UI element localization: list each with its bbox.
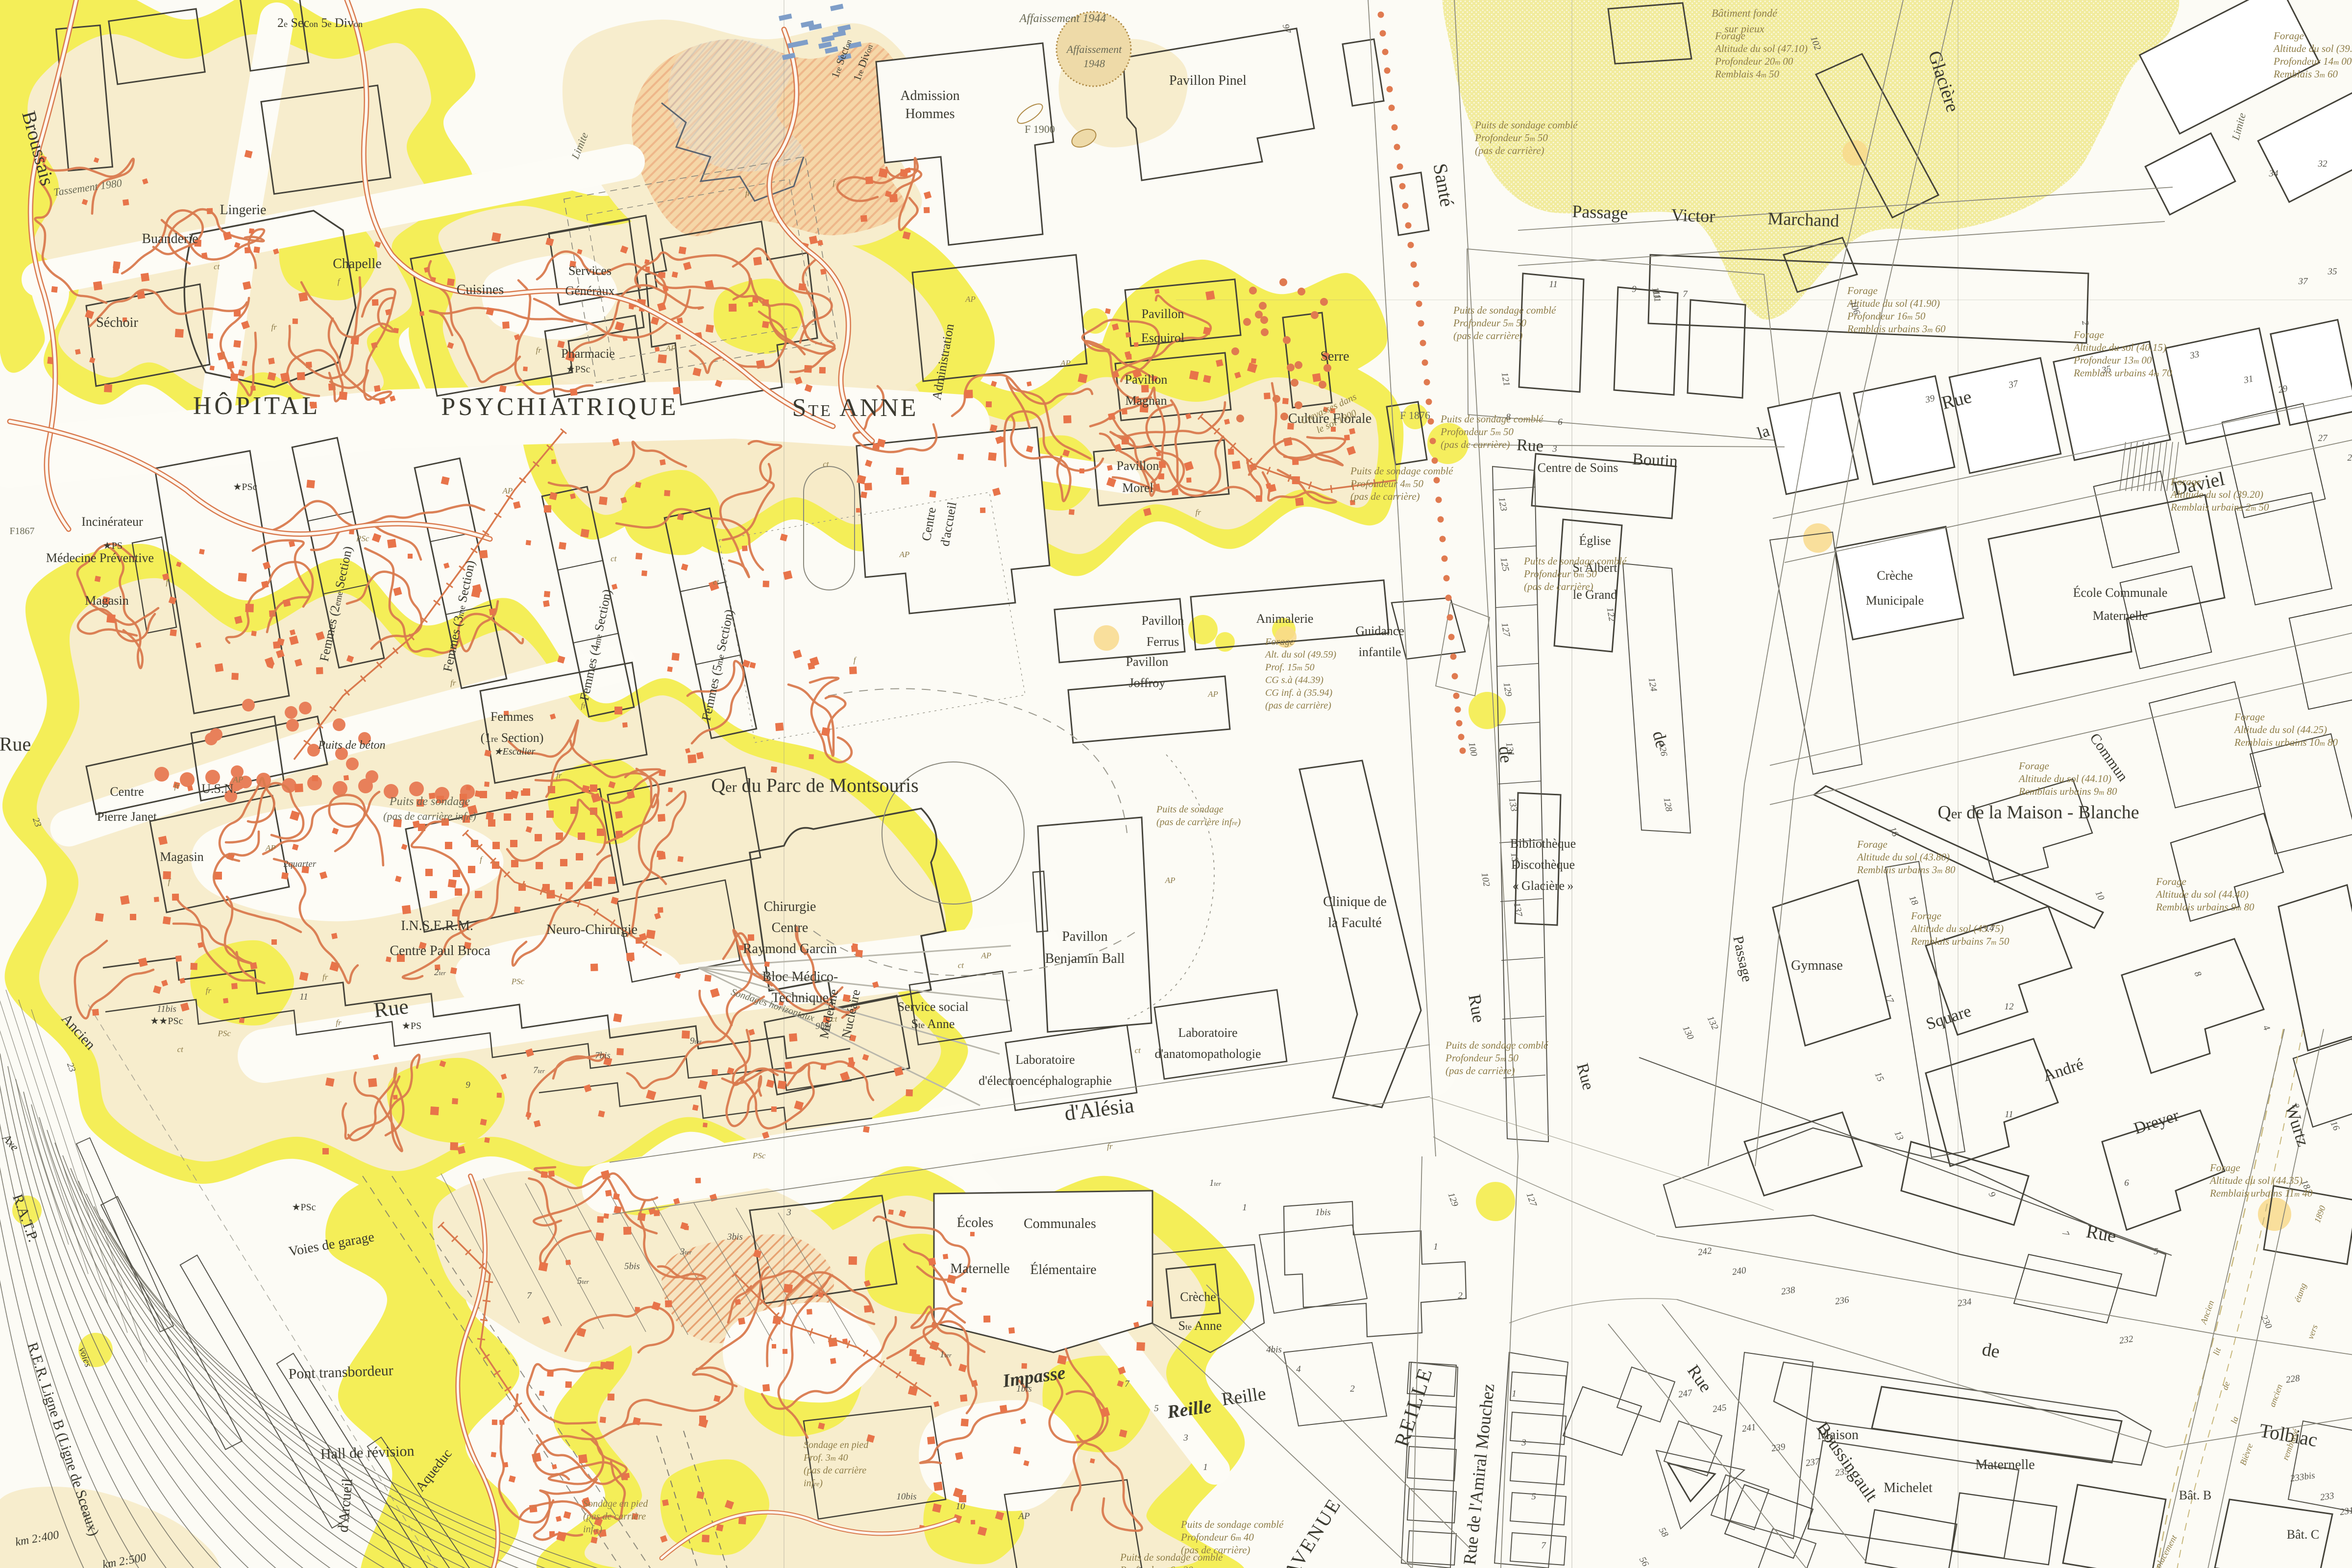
svg-text:Pavillon: Pavillon: [1126, 655, 1169, 669]
svg-text:Gymnase: Gymnase: [1791, 958, 1843, 973]
svg-text:Esquirol: Esquirol: [1141, 331, 1184, 345]
svg-text:Ste Anne: Ste Anne: [1178, 1319, 1222, 1333]
svg-text:Communales: Communales: [1024, 1216, 1096, 1231]
svg-text:Centre: Centre: [110, 784, 144, 799]
svg-text:Maternelle: Maternelle: [950, 1261, 1009, 1276]
svg-text:Pavillon: Pavillon: [1062, 929, 1107, 944]
svg-text:Services: Services: [568, 264, 612, 278]
svg-text:Centre Paul Broca: Centre Paul Broca: [390, 943, 490, 958]
svg-text:U.S.N.: U.S.N.: [201, 782, 237, 796]
svg-text:Profondeur 5m 50: Profondeur 5m 50: [1445, 1052, 1519, 1064]
svg-text:232: 232: [2119, 1334, 2134, 1346]
svg-text:Forage: Forage: [1857, 838, 1887, 850]
svg-text:Sondage en pied: Sondage en pied: [583, 1498, 648, 1509]
svg-text:Clinique de: Clinique de: [1323, 894, 1387, 909]
svg-text:Bâtiment fondé: Bâtiment fondé: [1712, 7, 1778, 19]
svg-text:Profondeur 5m 50: Profondeur 5m 50: [1453, 317, 1526, 329]
svg-text:Rue: Rue: [0, 733, 31, 755]
svg-text:10bis: 10bis: [896, 1492, 916, 1502]
svg-text:AP: AP: [502, 486, 513, 495]
svg-text:ct: ct: [823, 459, 830, 468]
svg-text:4: 4: [1296, 1364, 1301, 1374]
svg-text:34: 34: [2269, 169, 2279, 179]
svg-text:228: 228: [2285, 1373, 2301, 1385]
svg-text:Maternelle: Maternelle: [1975, 1457, 2034, 1472]
svg-text:infre): infre): [804, 1478, 823, 1489]
svg-text:Serre: Serre: [1320, 349, 1349, 364]
svg-text:11: 11: [2005, 1109, 2013, 1120]
svg-text:(pas de carrière): (pas de carrière): [1453, 330, 1523, 342]
svg-text:9bis: 9bis: [815, 1021, 831, 1031]
svg-text:Sondage en pied: Sondage en pied: [804, 1440, 869, 1450]
svg-text:Centre de Soins: Centre de Soins: [1538, 461, 1618, 475]
svg-text:(pas de carrière): (pas de carrière): [1441, 439, 1510, 450]
svg-text:11bis: 11bis: [157, 1004, 176, 1014]
svg-text:8: 8: [1506, 412, 1511, 422]
svg-text:Profondeur 5m 50: Profondeur 5m 50: [1440, 426, 1514, 438]
svg-text:Forage: Forage: [1847, 285, 1878, 296]
svg-text:1ter: 1ter: [1209, 1178, 1222, 1188]
svg-text:★PS: ★PS: [103, 540, 122, 551]
svg-text:25: 25: [2348, 453, 2352, 463]
svg-text:CG inf. à (35.94): CG inf. à (35.94): [1265, 687, 1333, 698]
svg-text:Remblais 4m 50: Remblais 4m 50: [1715, 68, 1780, 80]
svg-text:d'anatomopathologie: d'anatomopathologie: [1155, 1047, 1261, 1061]
svg-text:Profondeur 14m 00: Profondeur 14m 00: [2273, 55, 2352, 67]
svg-text:infantile: infantile: [1359, 645, 1401, 659]
svg-text:Puits de sondage comblé: Puits de sondage comblé: [1474, 119, 1578, 131]
svg-text:Hall de révision: Hall de révision: [320, 1443, 415, 1463]
svg-text:Passage: Passage: [1572, 201, 1628, 223]
svg-text:Rue: Rue: [372, 994, 410, 1022]
svg-text:fr: fr: [536, 345, 542, 355]
svg-text:Pavillon: Pavillon: [1117, 459, 1159, 473]
svg-text:Altitude du sol (43.80): Altitude du sol (43.80): [1856, 851, 1950, 863]
svg-text:Forage: Forage: [1715, 30, 1745, 42]
svg-text:HÔPITAL: HÔPITAL: [193, 392, 320, 420]
svg-text:Altitude du sol (39.05): Altitude du sol (39.05): [2273, 43, 2352, 54]
svg-text:Profondeur 5m 50: Profondeur 5m 50: [1474, 132, 1548, 144]
svg-text:Alt. du sol (49.59): Alt. du sol (49.59): [1264, 649, 1336, 660]
svg-text:1: 1: [1203, 1462, 1208, 1472]
svg-text:Altitude du sol (44.40): Altitude du sol (44.40): [2155, 888, 2249, 900]
svg-text:Bloc Médico-: Bloc Médico-: [762, 969, 838, 984]
svg-text:PSYCHIATRIQUE: PSYCHIATRIQUE: [441, 393, 679, 421]
svg-text:★★PSc: ★★PSc: [150, 1016, 183, 1027]
svg-text:(pas de carrière): (pas de carrière): [1524, 581, 1593, 592]
svg-text:27: 27: [2318, 433, 2328, 443]
svg-text:240: 240: [1732, 1265, 1747, 1277]
svg-text:Rue: Rue: [1516, 436, 1544, 456]
svg-text:Qer de la Maison - Blanche: Qer de la Maison - Blanche: [1937, 802, 2139, 823]
svg-text:AP: AP: [1165, 876, 1176, 885]
svg-text:(pas de carrière): (pas de carrière): [1475, 145, 1544, 156]
svg-text:Profondeur 6m 40: Profondeur 6m 40: [1180, 1531, 1254, 1543]
svg-text:(pas de carrière): (pas de carrière): [1265, 700, 1331, 711]
svg-text:Magnan: Magnan: [1125, 393, 1167, 408]
svg-text:Maison: Maison: [1817, 1427, 1859, 1443]
svg-text:AP: AP: [232, 775, 243, 784]
svg-text:3: 3: [1521, 1438, 1526, 1448]
svg-text:6: 6: [1558, 417, 1563, 427]
svg-text:11: 11: [299, 992, 308, 1002]
svg-text:Bât. C: Bât. C: [2287, 1527, 2319, 1542]
svg-text:Magasin: Magasin: [160, 850, 204, 864]
svg-text:Pharmacie: Pharmacie: [561, 346, 615, 361]
svg-text:1bis: 1bis: [1016, 1384, 1032, 1394]
svg-text:238: 238: [1781, 1285, 1796, 1297]
svg-text:PSc: PSc: [356, 534, 369, 543]
svg-text:PSc: PSc: [752, 1151, 766, 1160]
svg-text:Ferrus: Ferrus: [1147, 635, 1179, 649]
svg-text:5bis: 5bis: [624, 1261, 640, 1272]
svg-text:235: 235: [1835, 1466, 1850, 1478]
svg-text:fr: fr: [174, 782, 180, 791]
svg-text:AP: AP: [665, 343, 676, 353]
svg-text:1ter: 1ter: [940, 1349, 952, 1360]
svg-text:5: 5: [1531, 1492, 1536, 1502]
svg-text:ct: ct: [611, 554, 617, 563]
svg-text:fr: fr: [322, 972, 328, 981]
svg-text:(1re Section): (1re Section): [481, 731, 544, 745]
svg-text:7: 7: [1125, 1379, 1130, 1389]
svg-text:234: 234: [1957, 1297, 1973, 1309]
svg-text:Altitude du sol (44.25): Altitude du sol (44.25): [2233, 724, 2327, 735]
svg-text:fr: fr: [1107, 1142, 1113, 1151]
svg-text:Forage: Forage: [1265, 637, 1294, 647]
svg-text:★Escalier: ★Escalier: [494, 746, 536, 757]
svg-text:Crèche: Crèche: [1877, 568, 1913, 583]
svg-text:fr: fr: [206, 986, 212, 995]
svg-text:Bibliothèque: Bibliothèque: [1510, 836, 1576, 851]
svg-text:★PSc: ★PSc: [233, 482, 257, 492]
svg-text:2: 2: [1458, 1291, 1463, 1301]
svg-text:★PS: ★PS: [402, 1021, 421, 1031]
svg-text:I.N.S.E.R.M.: I.N.S.E.R.M.: [401, 918, 473, 933]
svg-text:Forage: Forage: [1911, 910, 1941, 922]
svg-text:Pierre Janet: Pierre Janet: [97, 809, 157, 824]
svg-text:Lingerie: Lingerie: [220, 202, 267, 218]
svg-text:7: 7: [1683, 289, 1688, 299]
svg-text:1: 1: [1242, 1202, 1247, 1213]
svg-text:Généraux: Généraux: [565, 284, 614, 298]
svg-text:Prof. 15m 50: Prof. 15m 50: [1265, 662, 1315, 673]
svg-text:Crèche: Crèche: [1180, 1290, 1216, 1304]
svg-text:9: 9: [465, 1080, 470, 1090]
svg-text:Forage: Forage: [2156, 876, 2186, 887]
svg-text:fr: fr: [336, 1018, 342, 1028]
svg-text:Puits de sondage comblé: Puits de sondage comblé: [1453, 304, 1557, 316]
svg-text:Puits de béton: Puits de béton: [318, 739, 385, 752]
svg-text:Forage: Forage: [2170, 476, 2201, 488]
svg-text:« Glacière »: « Glacière »: [1513, 879, 1573, 893]
svg-text:242: 242: [1697, 1246, 1713, 1258]
svg-text:Profondeur 13m 00: Profondeur 13m 00: [2073, 354, 2152, 366]
svg-text:AP: AP: [965, 294, 976, 304]
svg-text:PSc: PSc: [217, 1029, 231, 1038]
svg-text:Hommes: Hommes: [905, 106, 955, 122]
svg-text:(pas de carrière): (pas de carrière): [1350, 490, 1420, 502]
svg-text:2ter: 2ter: [434, 967, 446, 978]
svg-text:231: 231: [2339, 1505, 2352, 1518]
svg-text:(pas de carrière): (pas de carrière): [1445, 1065, 1515, 1077]
svg-text:Laboratoire: Laboratoire: [1015, 1053, 1075, 1067]
svg-text:ct: ct: [1135, 1046, 1142, 1055]
svg-text:Animalerie: Animalerie: [1256, 612, 1314, 626]
svg-text:Maternelle: Maternelle: [2093, 609, 2148, 623]
svg-text:Pavillon: Pavillon: [1125, 372, 1168, 387]
svg-text:237: 237: [1805, 1456, 1821, 1469]
svg-text:2quarter: 2quarter: [284, 859, 317, 869]
svg-text:Pavillon Pinel: Pavillon Pinel: [1169, 73, 1247, 88]
svg-text:236: 236: [1835, 1295, 1850, 1307]
svg-text:3: 3: [786, 1207, 791, 1218]
svg-text:Joffroy: Joffroy: [1129, 676, 1166, 690]
svg-text:fr: fr: [1196, 508, 1201, 517]
svg-text:7bis: 7bis: [595, 1051, 611, 1061]
svg-text:37: 37: [2298, 276, 2309, 287]
svg-text:Femmes: Femmes: [490, 710, 534, 724]
svg-text:fr: fr: [450, 678, 456, 687]
svg-text:7: 7: [527, 1291, 532, 1301]
svg-text:Puits de sondage comblé: Puits de sondage comblé: [1523, 555, 1627, 567]
svg-text:Morel: Morel: [1122, 481, 1153, 495]
svg-text:12: 12: [2005, 1002, 2014, 1012]
svg-text:Élémentaire: Élémentaire: [1030, 1262, 1096, 1277]
svg-text:Forage: Forage: [2234, 711, 2265, 723]
svg-text:★PSc: ★PSc: [292, 1202, 316, 1213]
svg-text:Profondeur 6m 50: Profondeur 6m 50: [1523, 568, 1597, 580]
svg-text:241: 241: [1741, 1422, 1757, 1434]
svg-text:Altitude du sol (44.10): Altitude du sol (44.10): [2018, 773, 2111, 784]
svg-text:École Communale: École Communale: [2073, 586, 2168, 600]
svg-text:5: 5: [1154, 1403, 1159, 1414]
svg-text:Ste Anne: Ste Anne: [911, 1017, 955, 1031]
svg-text:1bis: 1bis: [1315, 1207, 1331, 1218]
svg-text:Altitude du sol (44.35): Altitude du sol (44.35): [2209, 1175, 2303, 1186]
svg-text:1948: 1948: [1083, 57, 1105, 70]
svg-text:11: 11: [1549, 279, 1558, 290]
svg-text:247: 247: [1678, 1388, 1694, 1400]
svg-text:3: 3: [1183, 1433, 1188, 1443]
svg-text:(pas de carrière: (pas de carrière: [583, 1511, 646, 1522]
svg-text:AP: AP: [980, 951, 991, 960]
svg-text:AP: AP: [265, 843, 276, 853]
svg-text:2e Secon 5e Divon: 2e Secon 5e Divon: [277, 16, 363, 30]
svg-text:la Faculté: la Faculté: [1328, 915, 1382, 931]
svg-text:fr: fr: [556, 771, 562, 780]
svg-text:Église: Église: [1579, 534, 1611, 548]
svg-text:Puits de sondage comblé: Puits de sondage comblé: [1440, 413, 1544, 425]
svg-text:Service social: Service social: [897, 1000, 968, 1014]
svg-text:Bât. B: Bât. B: [2179, 1488, 2211, 1502]
svg-text:3ter: 3ter: [680, 1247, 692, 1257]
svg-text:35: 35: [2327, 267, 2337, 277]
svg-text:Cuisines: Cuisines: [457, 282, 504, 297]
svg-text:Victor: Victor: [1671, 205, 1715, 226]
svg-text:7ter: 7ter: [533, 1065, 545, 1076]
svg-text:245: 245: [1712, 1402, 1727, 1415]
svg-text:Forage: Forage: [2073, 329, 2104, 341]
svg-text:ct: ct: [831, 1014, 838, 1024]
svg-text:Puits de sondage comblé: Puits de sondage comblé: [1350, 465, 1454, 477]
svg-text:Chirurgie: Chirurgie: [764, 899, 816, 914]
svg-text:3: 3: [1552, 444, 1557, 454]
svg-text:Incinérateur: Incinérateur: [81, 514, 143, 529]
svg-text:AP: AP: [1060, 358, 1071, 367]
svg-text:Puits de sondage: Puits de sondage: [389, 795, 470, 808]
svg-text:Pavillon: Pavillon: [1142, 307, 1184, 321]
svg-text:infre): infre): [583, 1524, 602, 1535]
svg-text:Qer du Parc de Montsouris: Qer du Parc de Montsouris: [711, 774, 918, 796]
svg-text:Chapelle: Chapelle: [333, 256, 382, 271]
svg-text:Forage: Forage: [2273, 30, 2304, 42]
svg-text:fr: fr: [581, 701, 587, 710]
svg-text:Altitude du sol (47.10): Altitude du sol (47.10): [1714, 43, 1808, 54]
svg-text:Profondeur 4m 50: Profondeur 4m 50: [1350, 478, 1423, 490]
svg-text:ct: ct: [958, 961, 965, 970]
svg-text:Forage: Forage: [2209, 1162, 2240, 1174]
svg-text:Puits de sondage comblé: Puits de sondage comblé: [1180, 1519, 1284, 1530]
svg-text:233: 233: [2320, 1491, 2335, 1503]
svg-text:PSc: PSc: [511, 977, 525, 986]
svg-text:AP: AP: [1017, 1511, 1030, 1521]
svg-text:1: 1: [1433, 1242, 1438, 1252]
svg-text:F 1876: F 1876: [1400, 409, 1430, 421]
svg-text:Pavillon: Pavillon: [1142, 613, 1184, 628]
svg-text:(pas de carrière infre): (pas de carrière infre): [1156, 817, 1241, 828]
svg-text:Michelet: Michelet: [1884, 1480, 1933, 1495]
svg-text:Puits de sondage: Puits de sondage: [1156, 804, 1224, 815]
svg-text:Médecine Préventive: Médecine Préventive: [46, 551, 154, 565]
svg-text:Puits de sondage comblé: Puits de sondage comblé: [1445, 1039, 1549, 1051]
svg-text:CG s.à (44.39): CG s.à (44.39): [1265, 675, 1323, 686]
svg-text:fr: fr: [745, 189, 751, 198]
svg-text:5ter: 5ter: [577, 1276, 589, 1286]
svg-text:Boutin: Boutin: [1632, 450, 1678, 471]
svg-text:Buanderie: Buanderie: [142, 231, 198, 246]
svg-text:3bis: 3bis: [727, 1232, 743, 1242]
svg-text:Prof. 3m 40: Prof. 3m 40: [803, 1452, 848, 1463]
svg-text:fr: fr: [271, 322, 277, 332]
svg-text:Profondeur 20m 00: Profondeur 20m 00: [1715, 55, 1793, 67]
svg-text:Altitude du sol (40.15): Altitude du sol (40.15): [2073, 342, 2166, 353]
svg-text:Affaissement 1944: Affaissement 1944: [1019, 12, 1106, 25]
svg-text:(pas de carrière: (pas de carrière: [804, 1465, 866, 1476]
svg-text:Forage: Forage: [2018, 760, 2049, 772]
svg-text:(pas de carrière infre): (pas de carrière infre): [383, 810, 476, 822]
svg-text:5: 5: [2154, 1247, 2158, 1257]
svg-text:Neuro-Chirurgie: Neuro-Chirurgie: [546, 922, 637, 937]
svg-text:AP: AP: [1207, 689, 1218, 699]
svg-text:d'électroencéphalographie: d'électroencéphalographie: [979, 1074, 1112, 1088]
svg-text:9: 9: [1632, 284, 1637, 294]
svg-text:7: 7: [1541, 1541, 1546, 1551]
svg-text:ct: ct: [177, 1045, 184, 1054]
svg-text:14: 14: [1985, 923, 1995, 933]
svg-text:32: 32: [2318, 159, 2328, 169]
svg-text:Écoles: Écoles: [957, 1215, 994, 1230]
svg-text:de: de: [1981, 1339, 2002, 1362]
svg-text:Marchand: Marchand: [1767, 208, 1839, 230]
svg-text:Remblais 3m 60: Remblais 3m 60: [2273, 68, 2338, 80]
svg-text:Magasin: Magasin: [85, 593, 129, 608]
svg-text:Laboratoire: Laboratoire: [1178, 1026, 1237, 1040]
svg-text:Puits de sondage comblé: Puits de sondage comblé: [1120, 1551, 1224, 1563]
svg-text:Admission: Admission: [900, 88, 959, 103]
svg-text:4bis: 4bis: [1266, 1345, 1282, 1355]
svg-text:Profondeur 6m 20: Profondeur 6m 20: [1120, 1564, 1193, 1568]
svg-text:Raymond Garcin: Raymond Garcin: [743, 941, 837, 956]
svg-text:2: 2: [1350, 1384, 1355, 1394]
svg-text:★PSc: ★PSc: [566, 364, 590, 375]
svg-text:6: 6: [2124, 1178, 2129, 1188]
svg-text:10: 10: [956, 1501, 966, 1512]
svg-text:1: 1: [1512, 1389, 1517, 1399]
svg-text:239: 239: [1771, 1442, 1787, 1454]
svg-text:9ter: 9ter: [690, 1036, 702, 1046]
svg-text:F1867: F1867: [9, 526, 34, 537]
svg-text:Guidance: Guidance: [1355, 624, 1404, 638]
svg-text:ct: ct: [214, 262, 220, 271]
svg-text:Séchoir: Séchoir: [96, 315, 138, 330]
svg-text:F 1900: F 1900: [1025, 123, 1055, 135]
svg-text:AP: AP: [899, 550, 910, 559]
svg-text:Benjamin Ball: Benjamin Ball: [1045, 951, 1125, 966]
svg-text:ct: ct: [713, 577, 720, 587]
svg-text:Municipale: Municipale: [1866, 593, 1924, 608]
svg-text:Centre: Centre: [772, 920, 808, 935]
svg-text:Affaissement: Affaissement: [1066, 43, 1122, 55]
svg-text:Altitude du sol (39.20): Altitude du sol (39.20): [2170, 489, 2263, 500]
